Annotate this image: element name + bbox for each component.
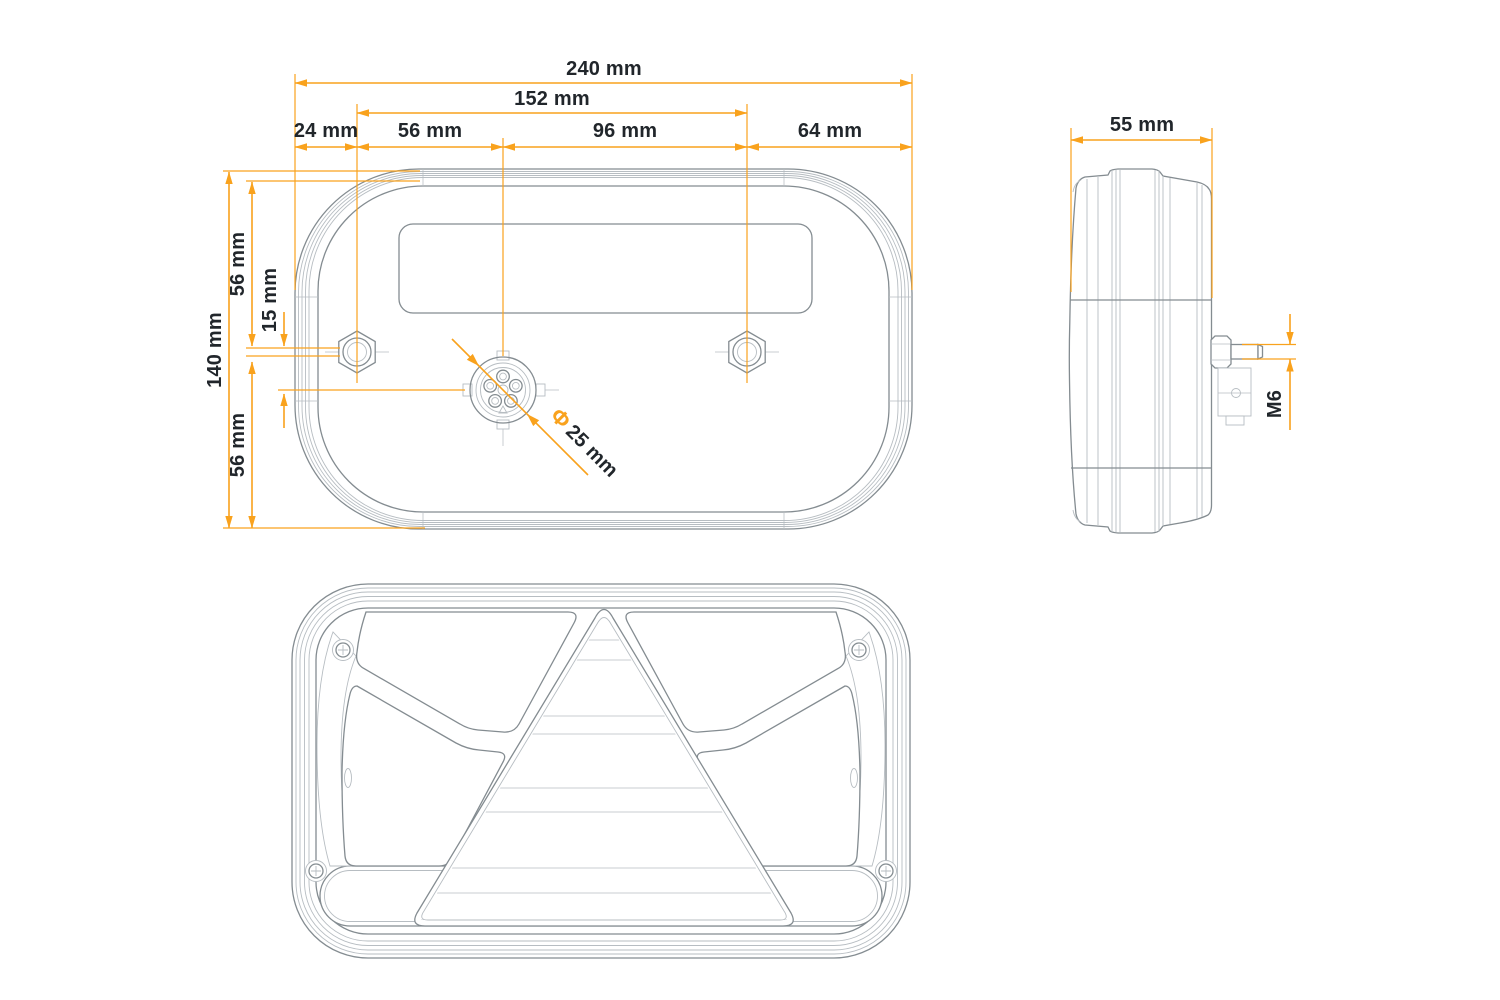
dim-label-56-top: 56 mm: [227, 232, 249, 296]
dim-label-56-bottom: 56 mm: [227, 413, 249, 477]
lamp-technical-drawing: 240 mm 152 mm 24 mm 56 mm 96 mm 64 mm 14…: [0, 0, 1500, 1000]
screw-top-right: [849, 640, 870, 661]
dim-label-152: 152 mm: [514, 88, 590, 110]
m6-stud: [1211, 336, 1263, 425]
dim-label-55: 55 mm: [1110, 114, 1174, 136]
screw-bottom-right: [876, 861, 897, 882]
screw-bottom-left: [306, 861, 327, 882]
label-recess: [399, 224, 812, 313]
dim-label-56h: 56 mm: [398, 120, 462, 142]
dim-label-140: 140 mm: [204, 312, 226, 388]
drawing-svg: 240 mm 152 mm 24 mm 56 mm 96 mm 64 mm 14…: [0, 0, 1500, 1000]
dim-label-24: 24 mm: [294, 120, 358, 142]
front-view: [292, 584, 910, 958]
dim-label-diameter: Φ25 mm: [545, 403, 624, 482]
back-view: 240 mm 152 mm 24 mm 56 mm 96 mm 64 mm 14…: [204, 58, 912, 529]
side-view: 55 mm M6: [1069, 114, 1296, 533]
dim-label-15: 15 mm: [259, 268, 281, 332]
dim-label-96: 96 mm: [593, 120, 657, 142]
side-view-body: [1069, 169, 1262, 533]
dim-label-m6: M6: [1264, 390, 1286, 418]
screw-top-left: [333, 640, 354, 661]
dim-label-240: 240 mm: [566, 58, 642, 80]
dim-label-64: 64 mm: [798, 120, 862, 142]
